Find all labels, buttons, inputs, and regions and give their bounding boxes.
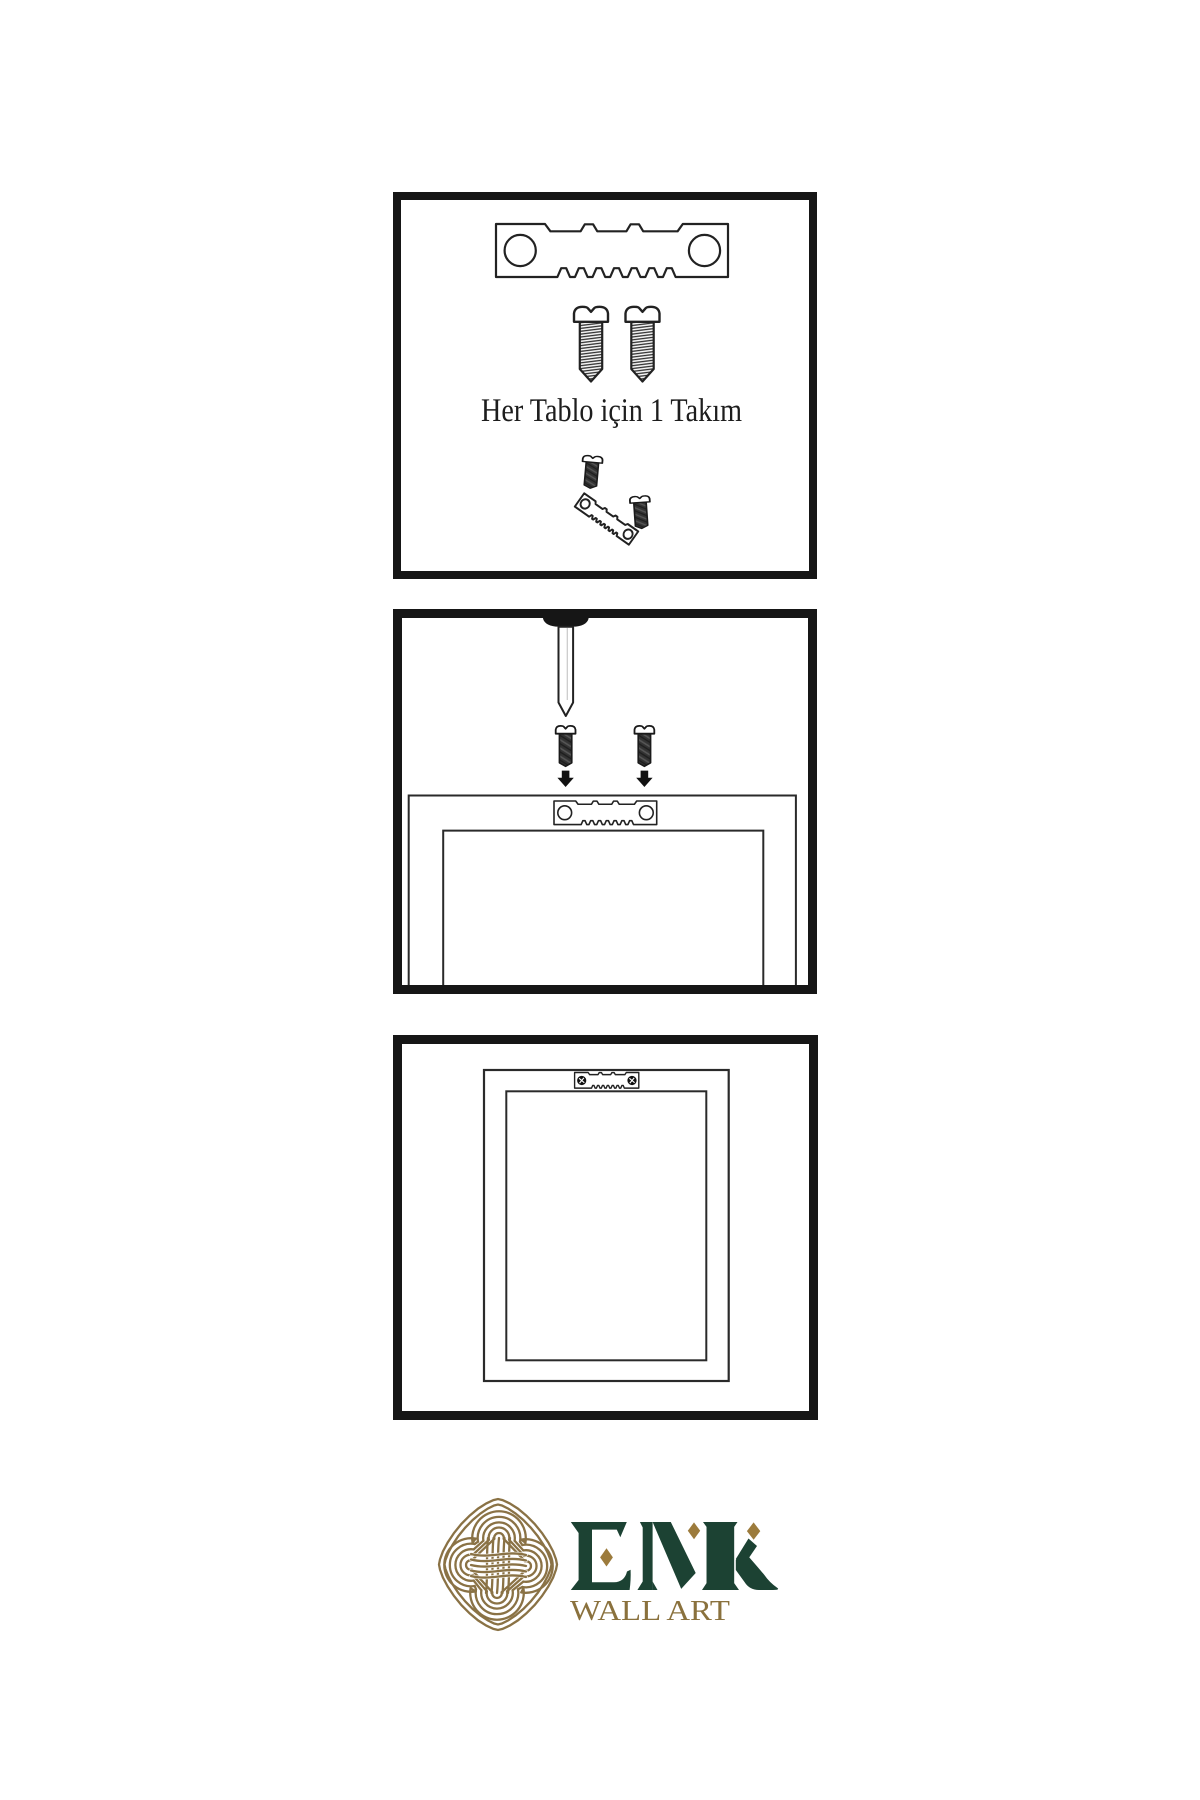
svg-text:Her Tablo için 1 Takım: Her Tablo için 1 Takım <box>481 393 742 429</box>
svg-text:WALL ART: WALL ART <box>570 1596 730 1627</box>
